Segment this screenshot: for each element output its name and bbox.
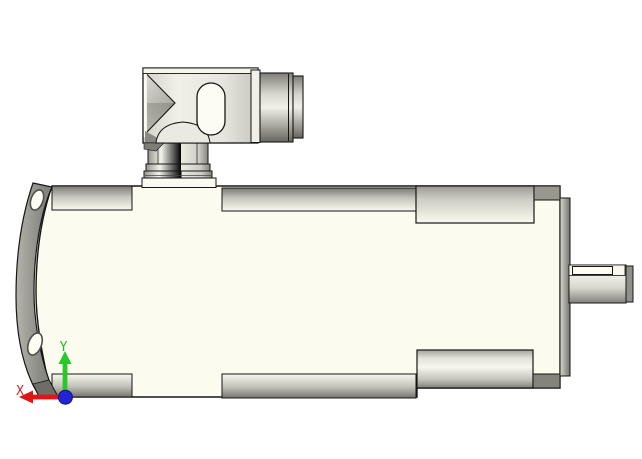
model-canvas[interactable]: X Y — [0, 0, 642, 459]
bottom-rear-boss[interactable] — [417, 350, 533, 388]
right-angle-connector[interactable] — [143, 68, 258, 151]
motor-model[interactable] — [16, 68, 633, 398]
bottom-rear-corner[interactable] — [533, 374, 560, 388]
connector-box-top-face — [143, 68, 258, 74]
gland-tip[interactable] — [293, 76, 303, 138]
y-axis-label: Y — [60, 340, 68, 355]
output-shaft[interactable] — [569, 265, 633, 303]
connector-box-left-highlight — [144, 74, 147, 137]
neck-base-plate[interactable] — [142, 178, 216, 188]
shaft-key[interactable] — [573, 267, 613, 275]
shaft-tip[interactable] — [626, 266, 633, 302]
housing-top-chamfer-left[interactable] — [52, 186, 132, 210]
top-rear-corner[interactable] — [534, 186, 560, 200]
cable-gland[interactable] — [251, 70, 303, 143]
housing-bottom-chamfer-right[interactable] — [222, 374, 416, 398]
gland-collar[interactable] — [251, 70, 260, 143]
top-rear-boss[interactable] — [416, 186, 534, 223]
x-axis-shaft — [33, 395, 62, 400]
origin-z-dot-icon — [58, 390, 72, 404]
cad-viewport[interactable]: X Y — [0, 0, 642, 459]
x-axis-label: X — [16, 384, 24, 399]
housing-top-chamfer-right[interactable] — [222, 188, 416, 211]
connector-front-stadium[interactable] — [197, 83, 225, 135]
